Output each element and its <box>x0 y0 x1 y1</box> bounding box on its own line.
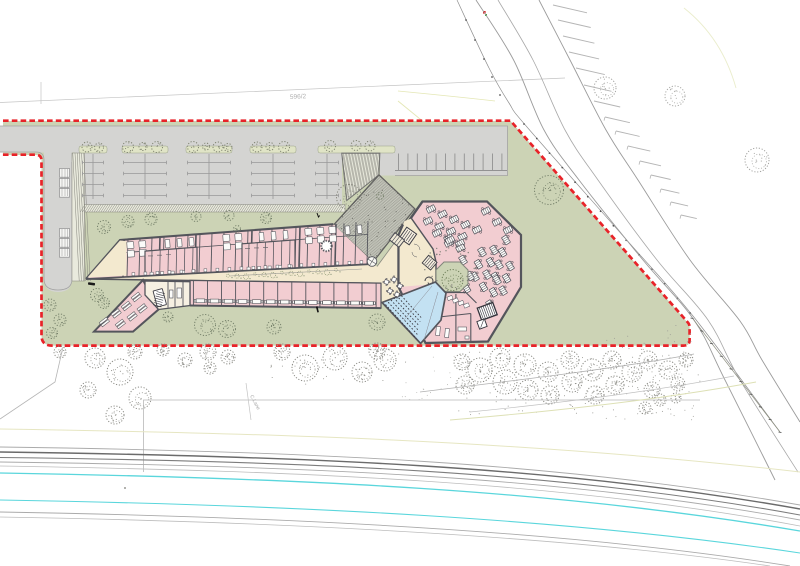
svg-text:596/2: 596/2 <box>290 93 307 101</box>
